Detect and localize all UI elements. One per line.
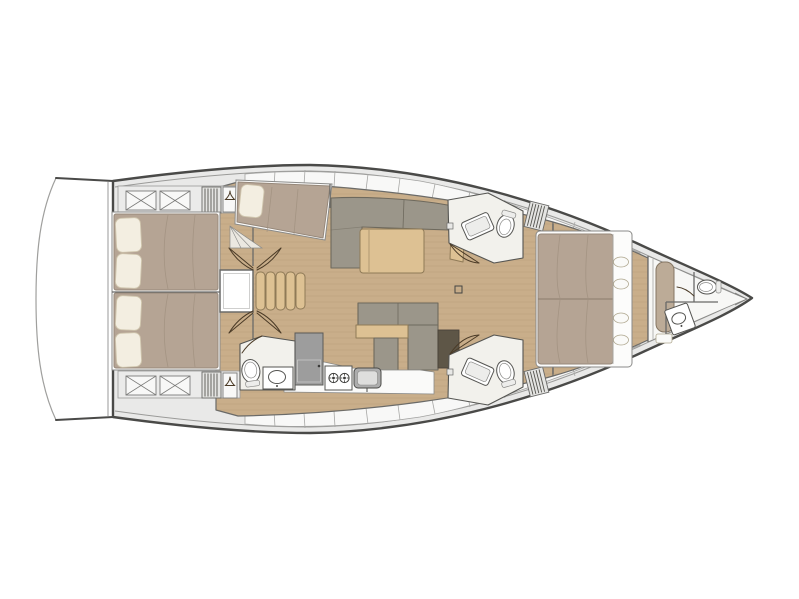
refrigerator [295,333,323,385]
seat-return [408,325,438,370]
engine-access-hatch [220,270,253,312]
burner-icon [329,373,338,382]
shelf-cushion [614,335,629,345]
shelf-cushion [614,279,629,289]
vent-grate-icon [202,187,221,213]
shelf-cushion [614,257,629,267]
washbasin [269,371,286,384]
aft-head [240,336,295,390]
floorplan-canvas [0,0,799,599]
pillow [238,184,264,218]
swim-platform [36,178,113,420]
pillow [115,332,142,367]
burner-icon [340,373,349,382]
latch-fitting [447,369,453,375]
pillow [115,295,142,330]
stair-treads [256,272,305,310]
toilet [698,280,722,294]
owner-cabin [536,224,632,374]
forepeak [648,256,747,343]
vent-grate-icon [202,372,221,398]
pillow [115,217,142,252]
wood-ledge [356,325,408,338]
shelf-cushion [614,313,629,323]
bench-cushion [656,334,672,343]
pillow [115,253,142,288]
faucet-icon [276,385,278,387]
latch-fitting [447,223,453,229]
fridge-handle [318,365,321,368]
dining-table [360,229,424,273]
yacht-floorplan [0,0,799,599]
